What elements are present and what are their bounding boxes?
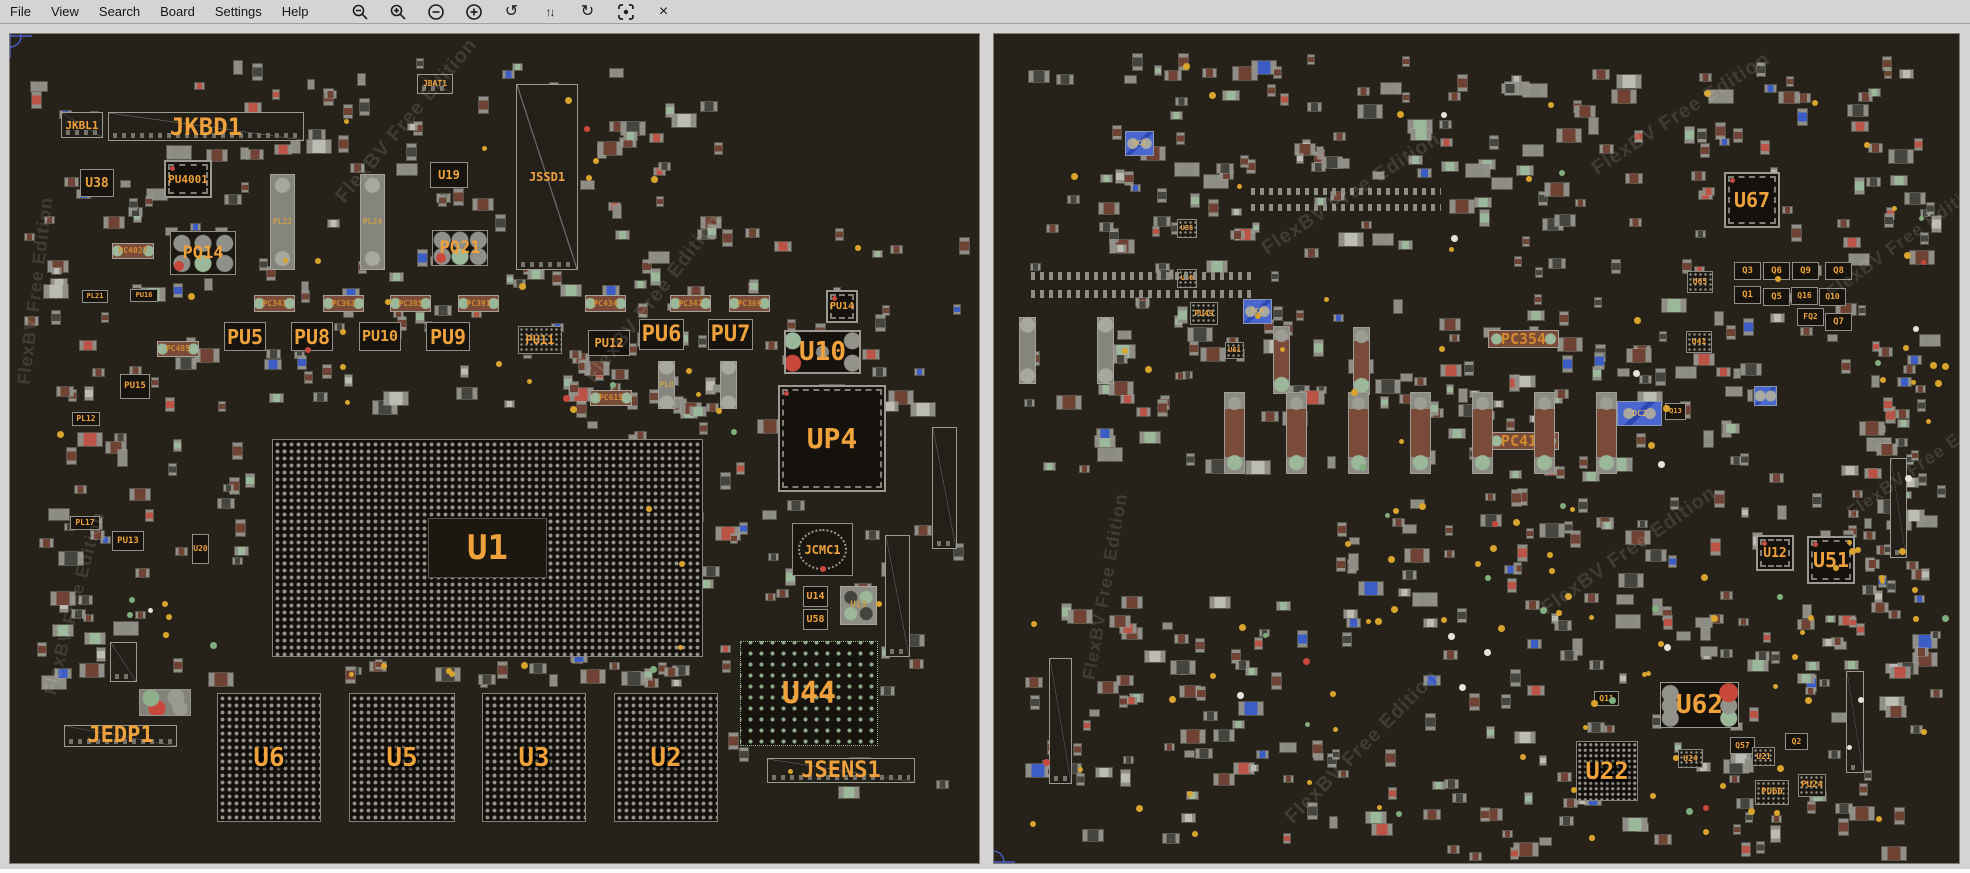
- passive-component[interactable]: [610, 69, 623, 77]
- passive-component[interactable]: [176, 358, 196, 369]
- passive-component[interactable]: [1512, 490, 1521, 506]
- passive-component[interactable]: [1515, 257, 1521, 266]
- passive-component[interactable]: [1196, 749, 1212, 758]
- passive-component[interactable]: [763, 511, 776, 519]
- passive-component[interactable]: [1507, 419, 1514, 430]
- component-q2[interactable]: Q2: [1785, 733, 1808, 750]
- passive-component[interactable]: [1677, 632, 1690, 640]
- passive-component[interactable]: [1233, 67, 1257, 80]
- component-jcmc1[interactable]: JCMC1: [792, 523, 853, 576]
- passive-component[interactable]: [1333, 750, 1339, 759]
- component-u12[interactable]: U12: [1756, 535, 1794, 571]
- component-u6[interactable]: U6: [217, 693, 321, 822]
- passive-component[interactable]: [1204, 712, 1217, 720]
- plus-circle-icon[interactable]: [462, 0, 485, 23]
- passive-component[interactable]: [273, 90, 279, 99]
- component-u62[interactable]: U62: [1660, 682, 1739, 728]
- passive-component[interactable]: [1126, 697, 1137, 704]
- passive-component[interactable]: [1314, 754, 1323, 760]
- passive-component[interactable]: [146, 510, 153, 521]
- passive-component[interactable]: [1413, 593, 1437, 606]
- passive-component[interactable]: [1891, 176, 1907, 185]
- passive-component[interactable]: [1739, 619, 1748, 625]
- passive-component[interactable]: [612, 370, 628, 379]
- component-pc434[interactable]: PC434: [585, 295, 626, 312]
- passive-component[interactable]: [345, 375, 352, 386]
- passive-component[interactable]: [1617, 75, 1641, 88]
- passive-component[interactable]: [1175, 635, 1188, 643]
- passive-component[interactable]: [1158, 189, 1166, 202]
- passive-component[interactable]: [1757, 63, 1765, 76]
- passive-component[interactable]: [130, 489, 150, 500]
- component-pu9[interactable]: PU9: [426, 322, 470, 351]
- passive-component[interactable]: [1446, 526, 1452, 535]
- passive-component[interactable]: [1545, 183, 1569, 196]
- passive-component[interactable]: [550, 675, 557, 686]
- passive-component[interactable]: [1704, 431, 1713, 447]
- passive-component[interactable]: [1272, 673, 1281, 689]
- passive-component[interactable]: [233, 443, 242, 459]
- passive-component[interactable]: [1798, 109, 1807, 125]
- passive-component[interactable]: [1481, 808, 1489, 821]
- component[interactable]: [1534, 392, 1555, 474]
- passive-component[interactable]: [85, 387, 93, 400]
- component[interactable]: [1596, 392, 1617, 474]
- passive-component[interactable]: [737, 463, 744, 474]
- passive-component[interactable]: [1098, 682, 1118, 693]
- passive-component[interactable]: [1515, 732, 1535, 743]
- passive-component[interactable]: [225, 195, 241, 204]
- component[interactable]: [1031, 290, 1256, 298]
- passive-component[interactable]: [1459, 389, 1467, 402]
- passive-component[interactable]: [1207, 261, 1227, 272]
- passive-component[interactable]: [1344, 610, 1357, 618]
- component-pu24[interactable]: PU24: [1798, 774, 1826, 797]
- passive-component[interactable]: [1274, 307, 1282, 320]
- zoom-in-icon[interactable]: [386, 0, 409, 23]
- passive-component[interactable]: [235, 547, 248, 555]
- component-u3[interactable]: U3: [482, 693, 586, 822]
- flip-vertical-icon[interactable]: ↑↓: [538, 0, 561, 23]
- passive-component[interactable]: [1723, 424, 1739, 433]
- passive-component[interactable]: [1750, 708, 1758, 721]
- center-target-icon[interactable]: [614, 0, 637, 23]
- passive-component[interactable]: [351, 164, 364, 172]
- component-pu12[interactable]: PU12: [588, 330, 630, 356]
- passive-component[interactable]: [1806, 688, 1815, 694]
- passive-component[interactable]: [1844, 238, 1860, 247]
- passive-component[interactable]: [610, 663, 619, 669]
- component[interactable]: [1846, 671, 1864, 773]
- passive-component[interactable]: [121, 181, 130, 187]
- passive-component[interactable]: [665, 668, 678, 676]
- passive-component[interactable]: [1855, 178, 1864, 194]
- passive-component[interactable]: [528, 270, 544, 279]
- passive-component[interactable]: [1502, 84, 1518, 93]
- component-u21[interactable]: U21: [1752, 747, 1775, 766]
- passive-component[interactable]: [1727, 326, 1735, 339]
- passive-component[interactable]: [1772, 816, 1781, 822]
- passive-component[interactable]: [1163, 623, 1172, 629]
- passive-component[interactable]: [588, 422, 597, 428]
- passive-component[interactable]: [1798, 620, 1814, 629]
- passive-component[interactable]: [1576, 200, 1585, 206]
- passive-component[interactable]: [1334, 315, 1343, 321]
- passive-component[interactable]: [1698, 129, 1706, 142]
- passive-component[interactable]: [530, 664, 546, 673]
- passive-component[interactable]: [1779, 92, 1799, 103]
- passive-component[interactable]: [473, 199, 493, 210]
- passive-component[interactable]: [788, 501, 804, 510]
- passive-component[interactable]: [1620, 674, 1626, 683]
- passive-component[interactable]: [1904, 510, 1924, 521]
- passive-component[interactable]: [1734, 129, 1742, 142]
- passive-component[interactable]: [1742, 843, 1750, 856]
- component[interactable]: [1348, 392, 1369, 474]
- passive-component[interactable]: [1281, 94, 1288, 105]
- passive-component[interactable]: [1828, 335, 1837, 341]
- menu-item-board[interactable]: Board: [150, 4, 205, 19]
- passive-component[interactable]: [1381, 397, 1388, 408]
- passive-component[interactable]: [1450, 200, 1474, 213]
- component[interactable]: [720, 361, 737, 409]
- passive-component[interactable]: [169, 464, 176, 475]
- component-pl17[interactable]: PL17: [70, 516, 100, 530]
- passive-component[interactable]: [570, 351, 581, 358]
- passive-component[interactable]: [1630, 219, 1641, 226]
- passive-component[interactable]: [457, 388, 477, 399]
- passive-component[interactable]: [1440, 121, 1451, 128]
- passive-component[interactable]: [639, 304, 647, 317]
- passive-component[interactable]: [581, 181, 594, 189]
- passive-component[interactable]: [407, 144, 416, 160]
- passive-component[interactable]: [97, 648, 105, 661]
- passive-component[interactable]: [102, 313, 108, 322]
- passive-component[interactable]: [1116, 170, 1124, 183]
- passive-component[interactable]: [1555, 215, 1575, 226]
- passive-component[interactable]: [1701, 144, 1709, 157]
- passive-component[interactable]: [881, 687, 894, 695]
- component-pc363[interactable]: PC363: [323, 295, 364, 312]
- passive-component[interactable]: [298, 356, 306, 369]
- passive-component[interactable]: [1626, 174, 1642, 183]
- passive-component[interactable]: [1253, 223, 1259, 232]
- passive-component[interactable]: [1029, 71, 1049, 82]
- passive-component[interactable]: [1510, 471, 1521, 478]
- passive-component[interactable]: [1339, 771, 1348, 777]
- passive-component[interactable]: [1502, 695, 1510, 708]
- passive-component[interactable]: [1792, 225, 1801, 241]
- passive-component[interactable]: [1249, 765, 1258, 771]
- passive-component[interactable]: [1381, 83, 1401, 94]
- passive-component[interactable]: [174, 659, 182, 672]
- minus-circle-icon[interactable]: [424, 0, 447, 23]
- component-u61[interactable]: U61: [1225, 342, 1244, 359]
- passive-component[interactable]: [1842, 466, 1858, 475]
- passive-component[interactable]: [708, 225, 716, 238]
- passive-component[interactable]: [721, 473, 730, 489]
- passive-component[interactable]: [360, 99, 369, 115]
- passive-component[interactable]: [1890, 667, 1910, 678]
- passive-component[interactable]: [1671, 498, 1678, 509]
- passive-component[interactable]: [236, 520, 245, 536]
- component-pu4001[interactable]: PU4001: [164, 160, 212, 198]
- passive-component[interactable]: [461, 366, 468, 377]
- passive-component[interactable]: [31, 82, 47, 91]
- component-pu14[interactable]: PU14: [826, 290, 858, 323]
- passive-component[interactable]: [1185, 751, 1194, 757]
- passive-component[interactable]: [1449, 93, 1460, 100]
- passive-component[interactable]: [1853, 491, 1862, 497]
- passive-component[interactable]: [51, 592, 75, 605]
- passive-component[interactable]: [1669, 556, 1676, 567]
- passive-component[interactable]: [1401, 374, 1412, 381]
- passive-component[interactable]: [1448, 846, 1459, 853]
- passive-component[interactable]: [1405, 549, 1429, 562]
- passive-component[interactable]: [1505, 566, 1516, 573]
- menu-item-settings[interactable]: Settings: [205, 4, 272, 19]
- passive-component[interactable]: [1191, 194, 1199, 207]
- passive-component[interactable]: [863, 350, 879, 359]
- passive-component[interactable]: [1515, 376, 1535, 387]
- component-u44[interactable]: U44: [740, 641, 878, 746]
- passive-component[interactable]: [1742, 508, 1748, 517]
- passive-component[interactable]: [1165, 71, 1181, 80]
- passive-component[interactable]: [1895, 808, 1904, 824]
- passive-component[interactable]: [53, 625, 73, 636]
- passive-component[interactable]: [1715, 312, 1723, 325]
- passive-component[interactable]: [715, 143, 722, 154]
- passive-component[interactable]: [766, 342, 777, 349]
- component[interactable]: [1049, 658, 1072, 784]
- passive-component[interactable]: [561, 285, 581, 296]
- passive-component[interactable]: [1317, 147, 1323, 156]
- passive-component[interactable]: [1453, 794, 1466, 802]
- passive-component[interactable]: [1888, 581, 1895, 592]
- passive-component[interactable]: [242, 183, 248, 192]
- passive-component[interactable]: [1850, 618, 1856, 627]
- component-pu7[interactable]: PU7: [708, 319, 753, 350]
- passive-component[interactable]: [1518, 545, 1527, 561]
- passive-component[interactable]: [1433, 782, 1444, 789]
- passive-component[interactable]: [1612, 90, 1636, 103]
- passive-component[interactable]: [1409, 156, 1422, 164]
- passive-component[interactable]: [581, 670, 605, 683]
- passive-component[interactable]: [38, 643, 46, 656]
- passive-component[interactable]: [1490, 136, 1498, 149]
- component[interactable]: [1224, 392, 1245, 474]
- passive-component[interactable]: [585, 362, 609, 375]
- passive-component[interactable]: [1441, 139, 1452, 146]
- passive-component[interactable]: [1277, 602, 1290, 610]
- passive-component[interactable]: [1190, 342, 1198, 355]
- passive-component[interactable]: [1860, 784, 1867, 795]
- passive-component[interactable]: [1399, 589, 1410, 596]
- component-u10[interactable]: U10: [784, 330, 861, 374]
- passive-component[interactable]: [1133, 54, 1142, 70]
- passive-component[interactable]: [1626, 531, 1650, 544]
- passive-component[interactable]: [937, 781, 948, 788]
- passive-component[interactable]: [635, 432, 646, 439]
- passive-component[interactable]: [1241, 156, 1248, 167]
- passive-component[interactable]: [146, 197, 152, 206]
- passive-component[interactable]: [1879, 348, 1892, 356]
- passive-component[interactable]: [1386, 750, 1395, 766]
- passive-component[interactable]: [1350, 538, 1359, 544]
- passive-component[interactable]: [1865, 469, 1881, 478]
- passive-component[interactable]: [59, 552, 83, 565]
- passive-component[interactable]: [1178, 307, 1187, 323]
- passive-component[interactable]: [839, 787, 859, 798]
- passive-component[interactable]: [553, 272, 561, 285]
- passive-component[interactable]: [1140, 432, 1160, 443]
- passive-component[interactable]: [866, 531, 879, 539]
- passive-component[interactable]: [1908, 356, 1921, 364]
- passive-component[interactable]: [1305, 249, 1318, 257]
- passive-component[interactable]: [1579, 499, 1587, 512]
- passive-component[interactable]: [270, 394, 283, 402]
- passive-component[interactable]: [1869, 144, 1882, 152]
- passive-component[interactable]: [1915, 139, 1922, 150]
- passive-component[interactable]: [1424, 810, 1440, 819]
- passive-component[interactable]: [1217, 164, 1233, 173]
- menu-item-search[interactable]: Search: [89, 4, 150, 19]
- passive-component[interactable]: [1865, 519, 1871, 528]
- passive-component[interactable]: [136, 612, 145, 618]
- passive-component[interactable]: [1927, 203, 1934, 214]
- passive-component[interactable]: [1181, 730, 1205, 743]
- passive-component[interactable]: [1449, 429, 1465, 438]
- passive-component[interactable]: [1905, 193, 1925, 204]
- passive-component[interactable]: [1528, 686, 1544, 695]
- passive-component[interactable]: [1528, 311, 1544, 320]
- component-u22[interactable]: U22: [1576, 741, 1638, 801]
- component-u13[interactable]: U13: [840, 586, 877, 625]
- passive-component[interactable]: [1656, 369, 1665, 385]
- passive-component[interactable]: [397, 164, 417, 175]
- passive-component[interactable]: [503, 71, 514, 78]
- menu-item-help[interactable]: Help: [272, 4, 319, 19]
- passive-component[interactable]: [1931, 632, 1940, 638]
- component-pu13[interactable]: PU13: [112, 531, 144, 551]
- passive-component[interactable]: [1770, 474, 1783, 482]
- passive-component[interactable]: [1337, 558, 1345, 571]
- passive-component[interactable]: [1860, 422, 1884, 435]
- passive-component[interactable]: [1575, 106, 1595, 117]
- passive-component[interactable]: [1540, 524, 1564, 537]
- passive-component[interactable]: [1808, 802, 1815, 813]
- passive-component[interactable]: [1886, 706, 1906, 717]
- passive-component[interactable]: [1257, 751, 1268, 758]
- passive-component[interactable]: [1588, 723, 1604, 732]
- passive-component[interactable]: [1255, 638, 1262, 649]
- passive-component[interactable]: [1845, 661, 1858, 669]
- passive-component[interactable]: [1932, 216, 1941, 232]
- passive-component[interactable]: [1848, 105, 1868, 116]
- passive-component[interactable]: [1866, 560, 1879, 568]
- component-dc2[interactable]: DC2: [1617, 401, 1662, 426]
- passive-component[interactable]: [613, 205, 621, 218]
- passive-component[interactable]: [1883, 57, 1891, 70]
- passive-component[interactable]: [1798, 674, 1814, 683]
- passive-component[interactable]: [1171, 661, 1195, 674]
- passive-component[interactable]: [1676, 367, 1696, 378]
- component[interactable]: [110, 642, 137, 682]
- component-u65[interactable]: U65: [1687, 271, 1713, 293]
- passive-component[interactable]: [1239, 702, 1263, 715]
- component-pq21[interactable]: PQ21: [432, 230, 488, 266]
- passive-component[interactable]: [650, 390, 658, 403]
- passive-component[interactable]: [1083, 830, 1103, 841]
- passive-component[interactable]: [1458, 609, 1466, 622]
- passive-component[interactable]: [672, 114, 696, 127]
- passive-component[interactable]: [1100, 223, 1113, 231]
- component[interactable]: [1019, 317, 1036, 384]
- passive-component[interactable]: [25, 317, 38, 325]
- passive-component[interactable]: [245, 103, 261, 112]
- passive-component[interactable]: [1084, 721, 1090, 730]
- passive-component[interactable]: [1787, 77, 1793, 86]
- passive-component[interactable]: [1125, 172, 1133, 185]
- passive-component[interactable]: [1734, 825, 1740, 834]
- passive-component[interactable]: [1298, 631, 1307, 647]
- passive-component[interactable]: [1120, 696, 1127, 707]
- passive-component[interactable]: [1121, 395, 1134, 403]
- component-u20[interactable]: U20: [192, 534, 209, 564]
- passive-component[interactable]: [1711, 539, 1720, 555]
- component-q5[interactable]: Q5: [1763, 288, 1790, 306]
- passive-component[interactable]: [1898, 378, 1911, 386]
- passive-component[interactable]: [130, 199, 137, 210]
- passive-component[interactable]: [1117, 676, 1133, 685]
- passive-component[interactable]: [52, 268, 61, 274]
- passive-component[interactable]: [651, 269, 660, 285]
- passive-component[interactable]: [1430, 402, 1438, 415]
- passive-component[interactable]: [1605, 726, 1614, 732]
- passive-component[interactable]: [1487, 727, 1494, 738]
- passive-component[interactable]: [1558, 773, 1571, 781]
- passive-component[interactable]: [1526, 601, 1539, 609]
- passive-component[interactable]: [1508, 579, 1516, 592]
- passive-component[interactable]: [1528, 640, 1541, 648]
- passive-component[interactable]: [1764, 633, 1770, 642]
- passive-component[interactable]: [1503, 831, 1512, 837]
- passive-component[interactable]: [1778, 506, 1786, 519]
- passive-component[interactable]: [1920, 335, 1940, 346]
- passive-component[interactable]: [650, 134, 663, 142]
- passive-component[interactable]: [344, 105, 352, 118]
- component-jssd1[interactable]: JSSD1: [516, 84, 578, 270]
- passive-component[interactable]: [174, 284, 182, 297]
- passive-component[interactable]: [1233, 721, 1244, 728]
- passive-component[interactable]: [616, 231, 629, 239]
- passive-component[interactable]: [1580, 457, 1587, 468]
- passive-component[interactable]: [1339, 233, 1363, 246]
- component[interactable]: [1353, 327, 1370, 395]
- passive-component[interactable]: [84, 615, 93, 621]
- passive-component[interactable]: [1125, 76, 1136, 83]
- component-pl21[interactable]: PL21: [82, 290, 108, 303]
- component-pu8[interactable]: PU8: [291, 322, 333, 351]
- passive-component[interactable]: [1231, 231, 1244, 239]
- passive-component[interactable]: [1262, 412, 1278, 421]
- passive-component[interactable]: [1921, 233, 1928, 244]
- component-u67[interactable]: U67: [1724, 172, 1780, 228]
- passive-component[interactable]: [657, 197, 663, 206]
- passive-component[interactable]: [1153, 227, 1159, 236]
- component-pu49[interactable]: PU49: [1190, 302, 1218, 325]
- passive-component[interactable]: [1403, 57, 1409, 66]
